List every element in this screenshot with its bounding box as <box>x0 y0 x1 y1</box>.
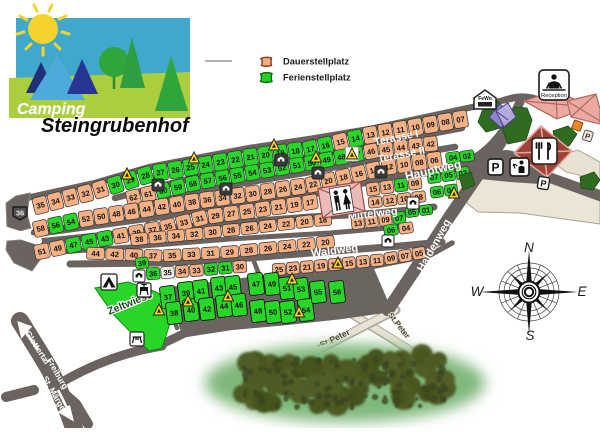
svg-text:Ferienstellplatz: Ferienstellplatz <box>283 73 351 83</box>
svg-text:47: 47 <box>251 279 260 289</box>
svg-text:38: 38 <box>169 308 178 318</box>
svg-text:22: 22 <box>231 155 241 165</box>
svg-text:36: 36 <box>16 209 24 218</box>
svg-text:32: 32 <box>190 229 199 239</box>
svg-text:28: 28 <box>263 187 273 197</box>
svg-text:09: 09 <box>426 120 436 130</box>
svg-text:26: 26 <box>171 165 181 175</box>
svg-text:30: 30 <box>208 227 217 237</box>
svg-text:27: 27 <box>156 167 166 177</box>
svg-text:Reception: Reception <box>541 93 567 99</box>
svg-text:20: 20 <box>300 217 309 227</box>
svg-text:22: 22 <box>281 219 290 229</box>
svg-text:12: 12 <box>385 196 394 206</box>
svg-text:13: 13 <box>358 257 367 267</box>
svg-text:23: 23 <box>288 264 297 274</box>
svg-text:23: 23 <box>216 157 226 167</box>
svg-text:27: 27 <box>226 209 236 219</box>
svg-text:46: 46 <box>127 207 137 217</box>
svg-text:20: 20 <box>261 150 271 160</box>
svg-text:33: 33 <box>187 250 196 259</box>
svg-text:52: 52 <box>81 214 91 224</box>
svg-text:18: 18 <box>291 146 301 156</box>
svg-text:49: 49 <box>322 155 332 165</box>
svg-text:S: S <box>525 328 534 343</box>
svg-text:E: E <box>577 284 587 299</box>
svg-text:47: 47 <box>68 240 78 251</box>
svg-text:42: 42 <box>426 139 435 149</box>
svg-text:28: 28 <box>244 246 253 256</box>
svg-text:38: 38 <box>187 197 197 207</box>
svg-text:30: 30 <box>235 262 244 272</box>
svg-text:48: 48 <box>111 209 121 219</box>
svg-text:07: 07 <box>400 251 410 261</box>
svg-text:P: P <box>491 161 499 175</box>
svg-text:36: 36 <box>153 233 162 243</box>
svg-text:06: 06 <box>386 225 396 235</box>
svg-text:48: 48 <box>253 306 262 316</box>
svg-text:31: 31 <box>206 249 216 259</box>
svg-text:37: 37 <box>149 251 158 260</box>
svg-text:26: 26 <box>278 184 288 194</box>
svg-text:FeWo: FeWo <box>478 96 492 102</box>
svg-text:32: 32 <box>233 191 243 201</box>
svg-text:42: 42 <box>157 202 167 212</box>
svg-text:N: N <box>524 240 534 255</box>
svg-text:17: 17 <box>305 197 315 207</box>
svg-text:26: 26 <box>245 223 254 233</box>
svg-text:43: 43 <box>100 234 110 244</box>
svg-text:29: 29 <box>225 248 234 257</box>
svg-text:23: 23 <box>258 204 268 214</box>
svg-text:26: 26 <box>263 244 272 254</box>
svg-text:08: 08 <box>441 117 451 127</box>
svg-text:13: 13 <box>382 182 392 192</box>
svg-text:53: 53 <box>262 165 272 175</box>
svg-text:40: 40 <box>186 305 195 315</box>
svg-text:49: 49 <box>267 279 276 289</box>
svg-text:38: 38 <box>135 235 144 245</box>
svg-text:Dauerstellplatz: Dauerstellplatz <box>283 57 349 67</box>
svg-text:37: 37 <box>163 292 172 302</box>
svg-text:06: 06 <box>432 187 442 197</box>
svg-text:48: 48 <box>336 152 346 162</box>
svg-text:32: 32 <box>206 265 215 275</box>
svg-text:53: 53 <box>296 284 305 294</box>
svg-text:19: 19 <box>316 261 325 271</box>
svg-text:36: 36 <box>149 269 158 279</box>
svg-text:30: 30 <box>248 189 258 199</box>
svg-text:43: 43 <box>214 283 223 293</box>
svg-text:Steingrubenhof: Steingrubenhof <box>41 115 191 137</box>
svg-text:42: 42 <box>110 250 119 259</box>
svg-text:35: 35 <box>168 251 178 261</box>
svg-text:36: 36 <box>202 195 212 205</box>
svg-text:29: 29 <box>211 211 221 221</box>
svg-text:44: 44 <box>91 249 101 258</box>
svg-text:09: 09 <box>386 253 396 263</box>
svg-text:56: 56 <box>218 173 228 183</box>
svg-text:46: 46 <box>234 300 243 310</box>
svg-text:57: 57 <box>203 176 213 186</box>
svg-text:50: 50 <box>96 211 106 221</box>
svg-text:W: W <box>471 284 485 299</box>
svg-text:42: 42 <box>202 304 211 314</box>
svg-text:31: 31 <box>221 263 231 273</box>
svg-text:50: 50 <box>268 307 277 317</box>
svg-text:07: 07 <box>456 114 466 124</box>
svg-text:34: 34 <box>171 231 181 241</box>
svg-text:35: 35 <box>163 268 173 278</box>
svg-text:28: 28 <box>226 225 235 235</box>
svg-text:40: 40 <box>172 200 182 210</box>
svg-text:52: 52 <box>283 307 292 317</box>
svg-text:34: 34 <box>178 267 188 277</box>
svg-text:39: 39 <box>137 258 147 268</box>
svg-text:02: 02 <box>462 151 472 161</box>
svg-text:56: 56 <box>332 287 341 297</box>
svg-text:21: 21 <box>302 262 312 272</box>
svg-text:33: 33 <box>192 266 201 276</box>
svg-text:49: 49 <box>53 243 63 254</box>
svg-text:19: 19 <box>290 200 300 210</box>
